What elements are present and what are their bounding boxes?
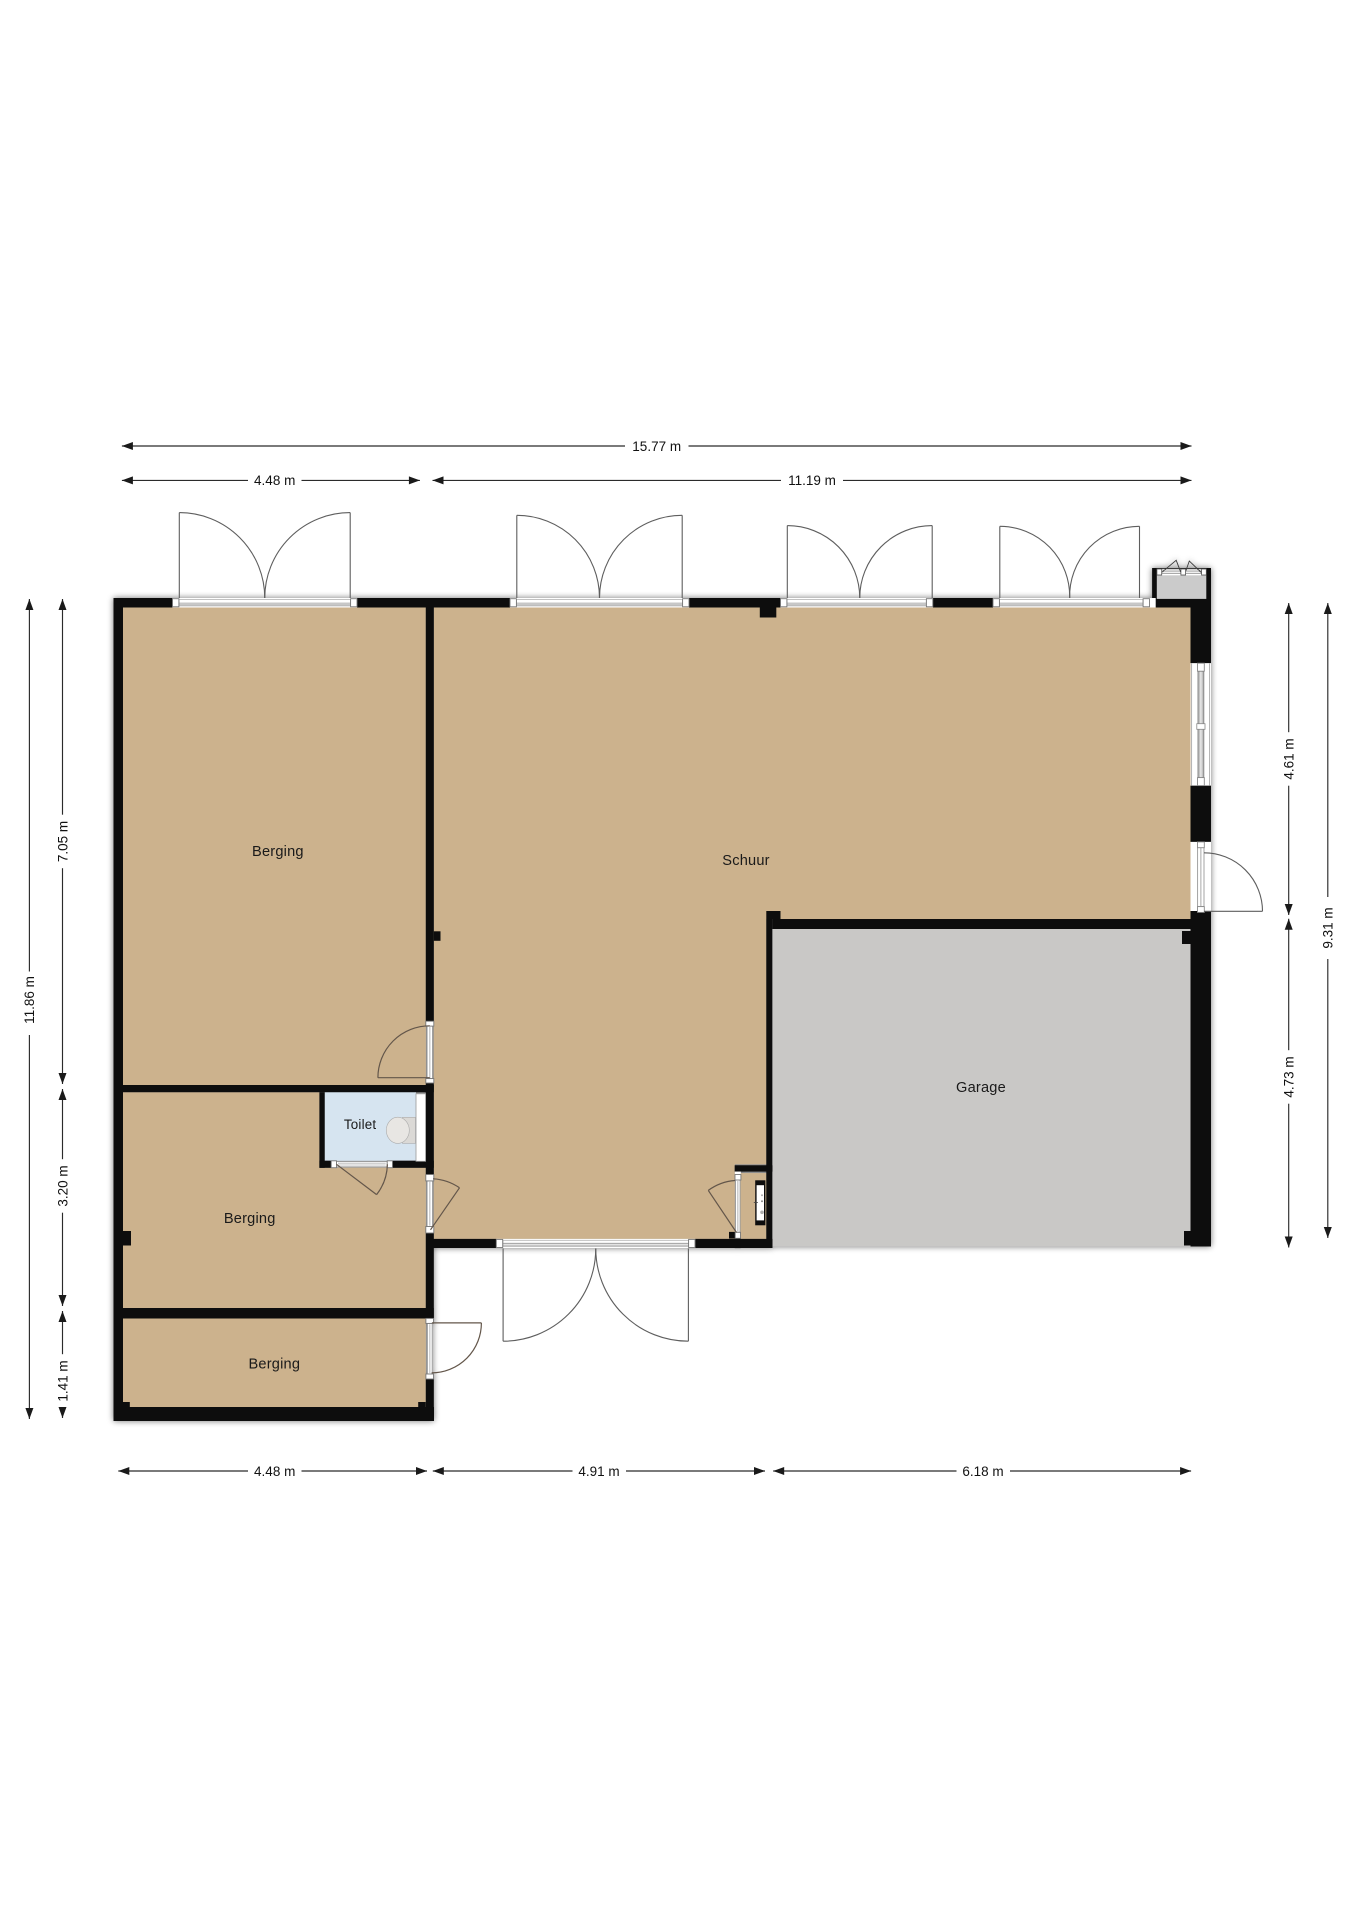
- svg-text:6.18 m: 6.18 m: [962, 1464, 1003, 1479]
- svg-text:9.31 m: 9.31 m: [1321, 907, 1336, 948]
- svg-text:Berging: Berging: [252, 844, 304, 860]
- svg-text:4.91 m: 4.91 m: [578, 1464, 619, 1479]
- svg-text:Toilet: Toilet: [344, 1117, 377, 1132]
- svg-text:4.73 m: 4.73 m: [1282, 1056, 1297, 1097]
- svg-text:Garage: Garage: [956, 1080, 1006, 1096]
- svg-text:Berging: Berging: [248, 1357, 300, 1373]
- svg-text:11.86 m: 11.86 m: [22, 976, 37, 1024]
- svg-text:Schuur: Schuur: [722, 853, 769, 869]
- svg-text:15.77 m: 15.77 m: [632, 439, 681, 454]
- svg-text:1.41 m: 1.41 m: [55, 1360, 70, 1401]
- svg-text:7.05 m: 7.05 m: [55, 821, 70, 862]
- svg-text:4.61 m: 4.61 m: [1282, 738, 1297, 779]
- svg-text:4.48 m: 4.48 m: [254, 1464, 295, 1479]
- svg-text:11.19 m: 11.19 m: [788, 473, 836, 488]
- svg-text:4.48 m: 4.48 m: [254, 473, 295, 488]
- svg-text:Berging: Berging: [224, 1211, 276, 1227]
- svg-text:3.20 m: 3.20 m: [55, 1165, 70, 1206]
